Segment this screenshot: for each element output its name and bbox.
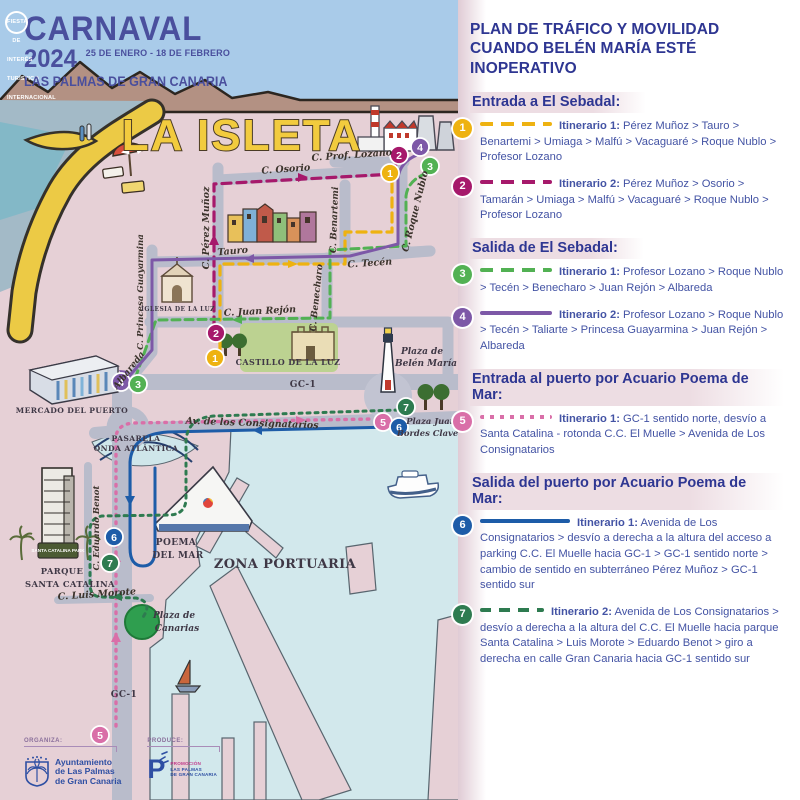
map-marker-number: 6 [111, 532, 117, 544]
route-6-badge: 6 [453, 516, 472, 535]
map-marker-number: 3 [135, 379, 141, 391]
route-2-line-sample [480, 180, 552, 184]
map-marker-number: 2 [396, 150, 402, 162]
map-marker-number: 5 [380, 417, 386, 429]
svg-text:GC-1: GC-1 [290, 380, 316, 390]
svg-text:IGLESIA DE LA LUZ: IGLESIA DE LA LUZ [141, 306, 215, 313]
divider [24, 746, 117, 752]
section-heading: Entrada a El Sebadal: [470, 92, 646, 113]
svg-text:C. Pérez Muñoz: C. Pérez Muñoz [201, 186, 212, 269]
svg-text:ZONA PORTUARIA: ZONA PORTUARIA [214, 557, 357, 572]
route-6-line-sample [480, 519, 570, 523]
section-heading: Entrada al puerto por Acuario Poema de M… [470, 369, 784, 406]
itinerary-item-6: 6Itinerario 1: Avenida de Los Consignata… [470, 516, 784, 594]
svg-text:Canarias: Canarias [155, 624, 199, 634]
svg-text:DEL MAR: DEL MAR [152, 551, 203, 561]
footer-logos: ORGANIZA: Ayuntamiento de Las Palmas de … [24, 738, 220, 788]
carnaval-dates: 25 DE ENERO - 18 DE FEBRERO [86, 48, 230, 58]
itinerary-item-2: 2Itinerario 2: Pérez Muñoz > Osorio > Ta… [470, 177, 784, 224]
organiza-block: ORGANIZA: Ayuntamiento de Las Palmas de … [24, 738, 121, 788]
map-marker-number: 3 [427, 161, 433, 173]
svg-text:ONDA ATLÁNTICA: ONDA ATLÁNTICA [94, 444, 179, 453]
promocion-logo-icon: P [147, 756, 165, 783]
svg-text:Plaza Juan: Plaza Juan [405, 416, 456, 426]
traffic-map: 12342143756675 LA ISLETA C. Prof. Lozano… [0, 0, 460, 800]
carnaval-header: CARNAVAL 2024 25 DE ENERO - 18 DE FEBRER… [24, 12, 249, 89]
map-marker-number: 4 [417, 142, 423, 154]
map-marker-number: 2 [213, 328, 219, 340]
itinerary-item-3: 3Itinerario 1: Profesor Lozano > Roque N… [470, 265, 784, 296]
svg-text:POEMA: POEMA [156, 538, 197, 548]
carnaval-city: LAS PALMAS DE GRAN CANARIA [24, 74, 233, 89]
route-1-line-sample [480, 122, 552, 126]
svg-text:C. Princesa Guayarmina: C. Princesa Guayarmina [136, 234, 146, 350]
route-5-line-sample [480, 415, 552, 419]
itinerary-item-7: 7Itinerario 2: Avenida de Los Consignata… [470, 605, 784, 668]
route-7-line-sample [480, 608, 544, 612]
svg-text:SANTA CATALINA: SANTA CATALINA [25, 579, 115, 589]
svg-text:MERCADO DEL PUERTO: MERCADO DEL PUERTO [16, 406, 128, 415]
traffic-plan-panel: PLAN DE TRÁFICO Y MOVILIDAD CUANDO BELÉN… [458, 0, 800, 800]
svg-text:Plaza de: Plaza de [400, 347, 443, 357]
itinerary-item-4: 4Itinerario 2: Profesor Lozano > Roque N… [470, 308, 784, 355]
svg-text:Plaza de: Plaza de [152, 611, 195, 621]
promocion-name: PROMOCIÓN LAS PALMAS DE GRAN CANARIA [170, 761, 217, 779]
itinerary-item-5: 5Itinerario 1: GC-1 sentido norte, desví… [470, 412, 784, 459]
route-3-badge: 3 [453, 265, 472, 284]
svg-text:C. Eduardo Benot: C. Eduardo Benot [92, 485, 102, 570]
carnaval-badge: FIESTA DE INTERÉS TURÍSTICO INTERNACIONA… [7, 13, 26, 32]
svg-text:Bordes Claverie: Bordes Claverie [396, 428, 460, 438]
route-4-badge: 4 [453, 308, 472, 327]
svg-text:PARQUE: PARQUE [41, 566, 84, 576]
map-marker-number: 1 [212, 353, 218, 365]
route-2-badge: 2 [453, 177, 472, 196]
itinerary-item-1: 1Itinerario 1: Pérez Muñoz > Tauro > Ben… [470, 119, 784, 166]
section-heading: Salida de El Sebadal: [470, 238, 644, 259]
map-marker-number: 7 [107, 558, 113, 570]
carnival-traffic-poster: 12342143756675 LA ISLETA C. Prof. Lozano… [0, 0, 800, 800]
organiza-label: ORGANIZA: [24, 738, 121, 744]
route-5-badge: 5 [453, 412, 472, 431]
section-heading: Salida del puerto por Acuario Poema de M… [470, 473, 784, 510]
svg-text:Belén María: Belén María [394, 358, 457, 369]
panel-title: PLAN DE TRÁFICO Y MOVILIDAD CUANDO BELÉN… [470, 20, 784, 78]
route-4-line-sample [480, 311, 552, 315]
svg-text:SANTA CATALINA PARK: SANTA CATALINA PARK [31, 548, 85, 553]
svg-text:CASTILLO DE LA LUZ: CASTILLO DE LA LUZ [236, 357, 341, 367]
route-7-badge: 7 [453, 605, 472, 624]
svg-text:PASARELA: PASARELA [112, 434, 161, 443]
produce-block: PRODUCE: P PROMOCIÓN LAS PALMAS DE GRAN … [147, 738, 220, 788]
route-1-badge: 1 [453, 119, 472, 138]
produce-label: PRODUCE: [147, 738, 220, 744]
route-3-line-sample [480, 268, 552, 272]
ayuntamiento-name: Ayuntamiento de Las Palmas de Gran Canar… [55, 758, 121, 786]
ayuntamiento-shield-icon [24, 756, 50, 788]
carnaval-title: CARNAVAL [24, 12, 231, 46]
lighthouse-icon [381, 328, 395, 392]
map-marker-number: 7 [403, 402, 409, 414]
map-marker-number: 1 [387, 168, 393, 180]
svg-text:GC-1: GC-1 [111, 690, 137, 700]
